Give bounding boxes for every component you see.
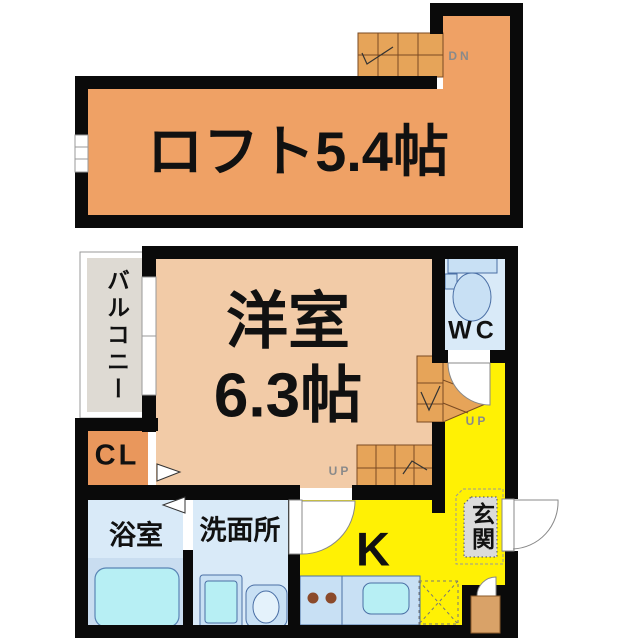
room-size: 6.3帖 <box>214 360 362 434</box>
stair-up-hall-label: UP <box>466 415 489 427</box>
sink-icon <box>246 585 287 628</box>
balcony-window <box>142 277 156 395</box>
kitchen-label: K <box>356 526 390 573</box>
stair-up-room-label: UP <box>329 465 352 477</box>
washing-machine-icon <box>200 575 242 628</box>
washroom-label: 洗面所 <box>200 518 281 545</box>
ps-cabinet <box>471 596 500 633</box>
bath-label: 浴室 <box>109 523 163 550</box>
loft-label: ロフト5.4帖 <box>147 124 449 180</box>
entrance-door <box>502 499 558 551</box>
loft-stairs <box>358 33 443 77</box>
entrance-label: 玄関 <box>470 502 493 552</box>
kitchen-counter <box>300 576 420 625</box>
wc-label: WC <box>448 319 498 344</box>
loft-plan <box>75 3 523 228</box>
room-label: 洋室 6.3帖 <box>214 286 362 435</box>
bathtub-icon <box>95 568 179 627</box>
room-name: 洋室 <box>214 286 362 360</box>
lower-stairs <box>357 445 433 490</box>
stair-dn-label: DN <box>448 50 471 62</box>
balcony-label: バルコニー <box>105 269 128 404</box>
closet-label: CL <box>95 442 140 471</box>
kitchen-sink-icon <box>363 583 409 614</box>
floor-plan-canvas: ロフト5.4帖 DN バルコニー 洋室 6.3帖 WC CL 浴室 洗面所 K … <box>0 0 640 640</box>
loft-window <box>75 135 88 172</box>
